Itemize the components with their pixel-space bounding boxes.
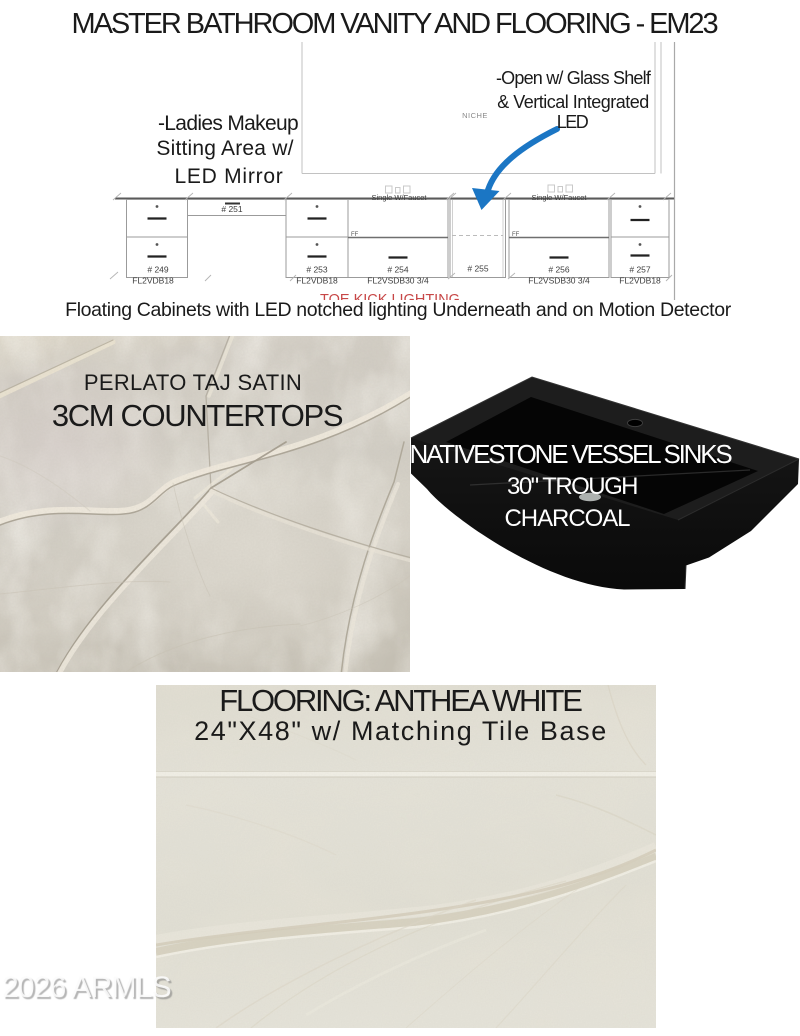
svg-text:# 255: # 255	[467, 264, 489, 274]
svg-text:FL2VSDB30 3/4: FL2VSDB30 3/4	[528, 276, 590, 286]
svg-text:FL2VDB18: FL2VDB18	[296, 276, 338, 286]
svg-text:# 257: # 257	[629, 265, 651, 275]
svg-text:FL2VDB18: FL2VDB18	[619, 276, 661, 286]
svg-text:# 256: # 256	[548, 265, 570, 275]
svg-text:NICHE: NICHE	[462, 111, 488, 120]
svg-text:Single W/Faucet: Single W/Faucet	[371, 193, 427, 202]
svg-text:# 253: # 253	[306, 265, 328, 275]
svg-text:Single W/Faucet: Single W/Faucet	[531, 193, 587, 202]
svg-text:FF: FF	[351, 232, 359, 238]
svg-text:# 249: # 249	[147, 265, 169, 275]
svg-text:FF: FF	[512, 232, 520, 238]
svg-text:# 251: # 251	[221, 204, 243, 214]
svg-text:# 254: # 254	[387, 265, 409, 275]
svg-text:FL2VSDB30 3/4: FL2VSDB30 3/4	[367, 276, 429, 286]
svg-text:FL2VDB18: FL2VDB18	[132, 276, 174, 286]
